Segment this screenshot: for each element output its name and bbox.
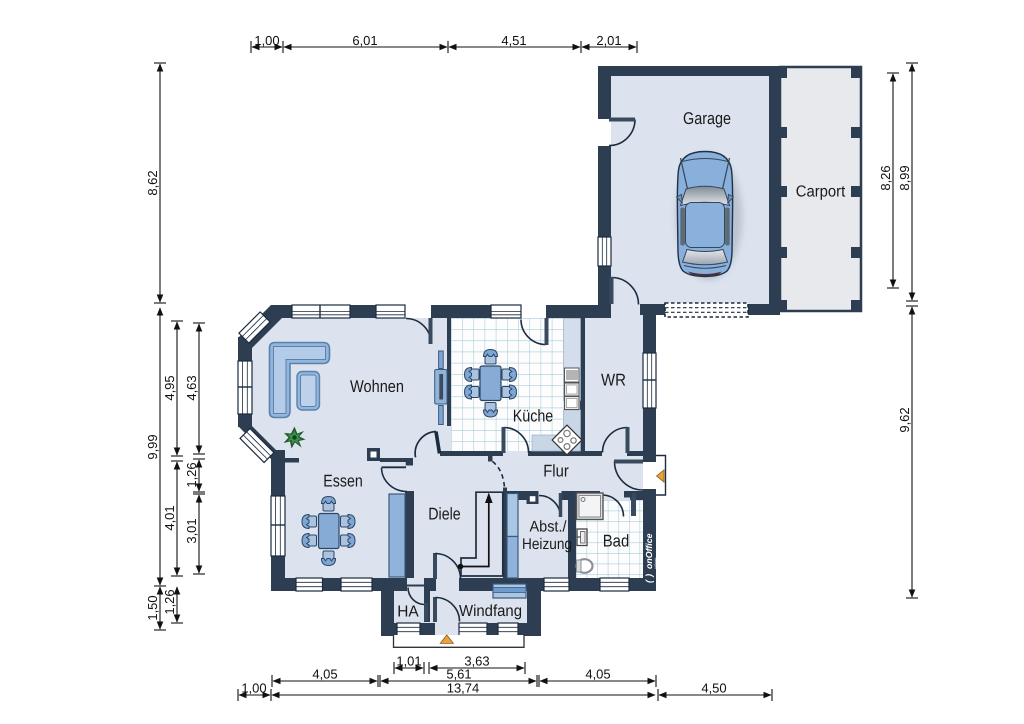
svg-text:1,50: 1,50 (145, 595, 160, 620)
svg-text:Flur: Flur (543, 462, 569, 481)
svg-text:1,26: 1,26 (162, 589, 177, 614)
svg-text:1,01: 1,01 (396, 654, 421, 669)
svg-text:2,01: 2,01 (596, 33, 621, 48)
svg-text:9,99: 9,99 (145, 434, 160, 459)
svg-text:HA: HA (397, 604, 419, 621)
svg-text:Bad: Bad (603, 532, 630, 551)
svg-text:software: software (654, 557, 658, 569)
svg-text:4,05: 4,05 (585, 667, 610, 682)
svg-text:8,62: 8,62 (145, 170, 160, 195)
svg-text:Wohnen: Wohnen (350, 377, 404, 396)
svg-text:13,74: 13,74 (447, 681, 480, 696)
svg-text:4,01: 4,01 (162, 505, 177, 530)
svg-text:4,95: 4,95 (162, 375, 177, 400)
svg-text:WR: WR (601, 371, 626, 390)
svg-text:Windfang: Windfang (459, 603, 522, 620)
svg-text:5,61: 5,61 (446, 667, 471, 682)
svg-text:4,05: 4,05 (312, 667, 337, 682)
svg-text:Heizung: Heizung (522, 536, 572, 553)
svg-text:4,50: 4,50 (701, 681, 726, 696)
svg-text:1,00: 1,00 (254, 33, 279, 48)
svg-text:Abst./: Abst./ (530, 519, 568, 536)
svg-text:6,01: 6,01 (352, 33, 377, 48)
svg-text:Küche: Küche (513, 407, 554, 426)
svg-text:Garage: Garage (683, 109, 731, 128)
svg-text:4,51: 4,51 (501, 33, 526, 48)
svg-text:8,99: 8,99 (897, 165, 912, 190)
svg-text:Essen: Essen (323, 472, 363, 491)
svg-text:( ): ( ) (644, 574, 654, 583)
svg-text:1,26: 1,26 (184, 462, 199, 487)
svg-text:8,26: 8,26 (878, 165, 893, 190)
svg-text:9,62: 9,62 (897, 407, 912, 432)
svg-text:Carport: Carport (796, 184, 846, 201)
svg-text:3,01: 3,01 (184, 518, 199, 543)
svg-text:4,63: 4,63 (184, 375, 199, 400)
svg-text:1,00: 1,00 (241, 681, 266, 696)
svg-text:onOffice: onOffice (644, 533, 654, 569)
svg-text:Diele: Diele (428, 505, 461, 524)
